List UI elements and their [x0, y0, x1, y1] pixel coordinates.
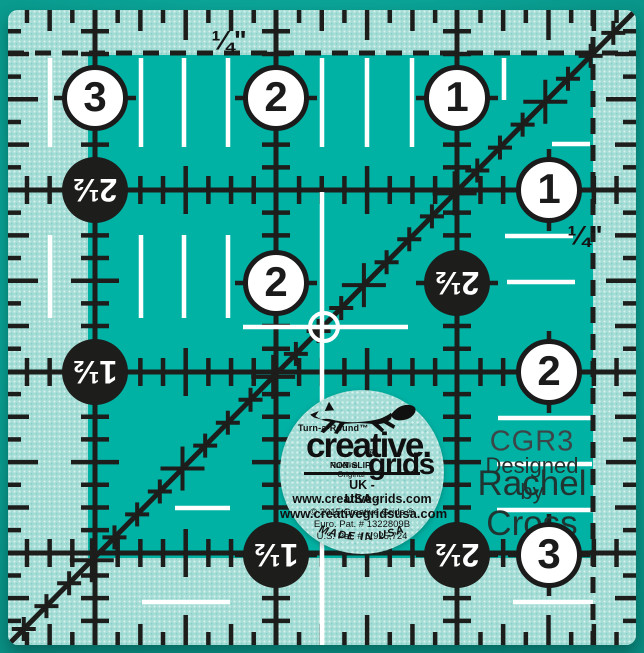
measure-circle-black: 1½ — [243, 522, 309, 588]
measure-circle-white: 3 — [62, 65, 128, 131]
measure-circle-white: 1 — [424, 65, 490, 131]
measure-circle-black: 1½ — [62, 339, 128, 405]
measure-circle-black: 2½ — [62, 157, 128, 223]
measure-circle-white: 2 — [243, 65, 309, 131]
measure-circle-white: 3 — [516, 522, 582, 588]
made-in-usa-arc: MADE IN USA — [280, 390, 444, 554]
quilting-ruler: Turn-a-Round™ creative. grids® The Origi… — [8, 10, 636, 645]
measure-circle-white: 1 — [516, 157, 582, 223]
quarter-inch-label-right: ¼" — [567, 221, 602, 252]
creative-grids-logo: Turn-a-Round™ creative. grids® The Origi… — [280, 390, 444, 554]
svg-text:MADE IN USA: MADE IN USA — [317, 523, 406, 543]
quarter-inch-label-top: ¼" — [211, 26, 246, 57]
measure-circle-black: 2½ — [424, 522, 490, 588]
product-photo-canvas: { "product": { "model": "CGR3", "designe… — [0, 0, 644, 653]
measure-circle-black: 2½ — [424, 250, 490, 316]
measure-circle-white: 2 — [516, 339, 582, 405]
measure-circle-white: 2 — [243, 250, 309, 316]
